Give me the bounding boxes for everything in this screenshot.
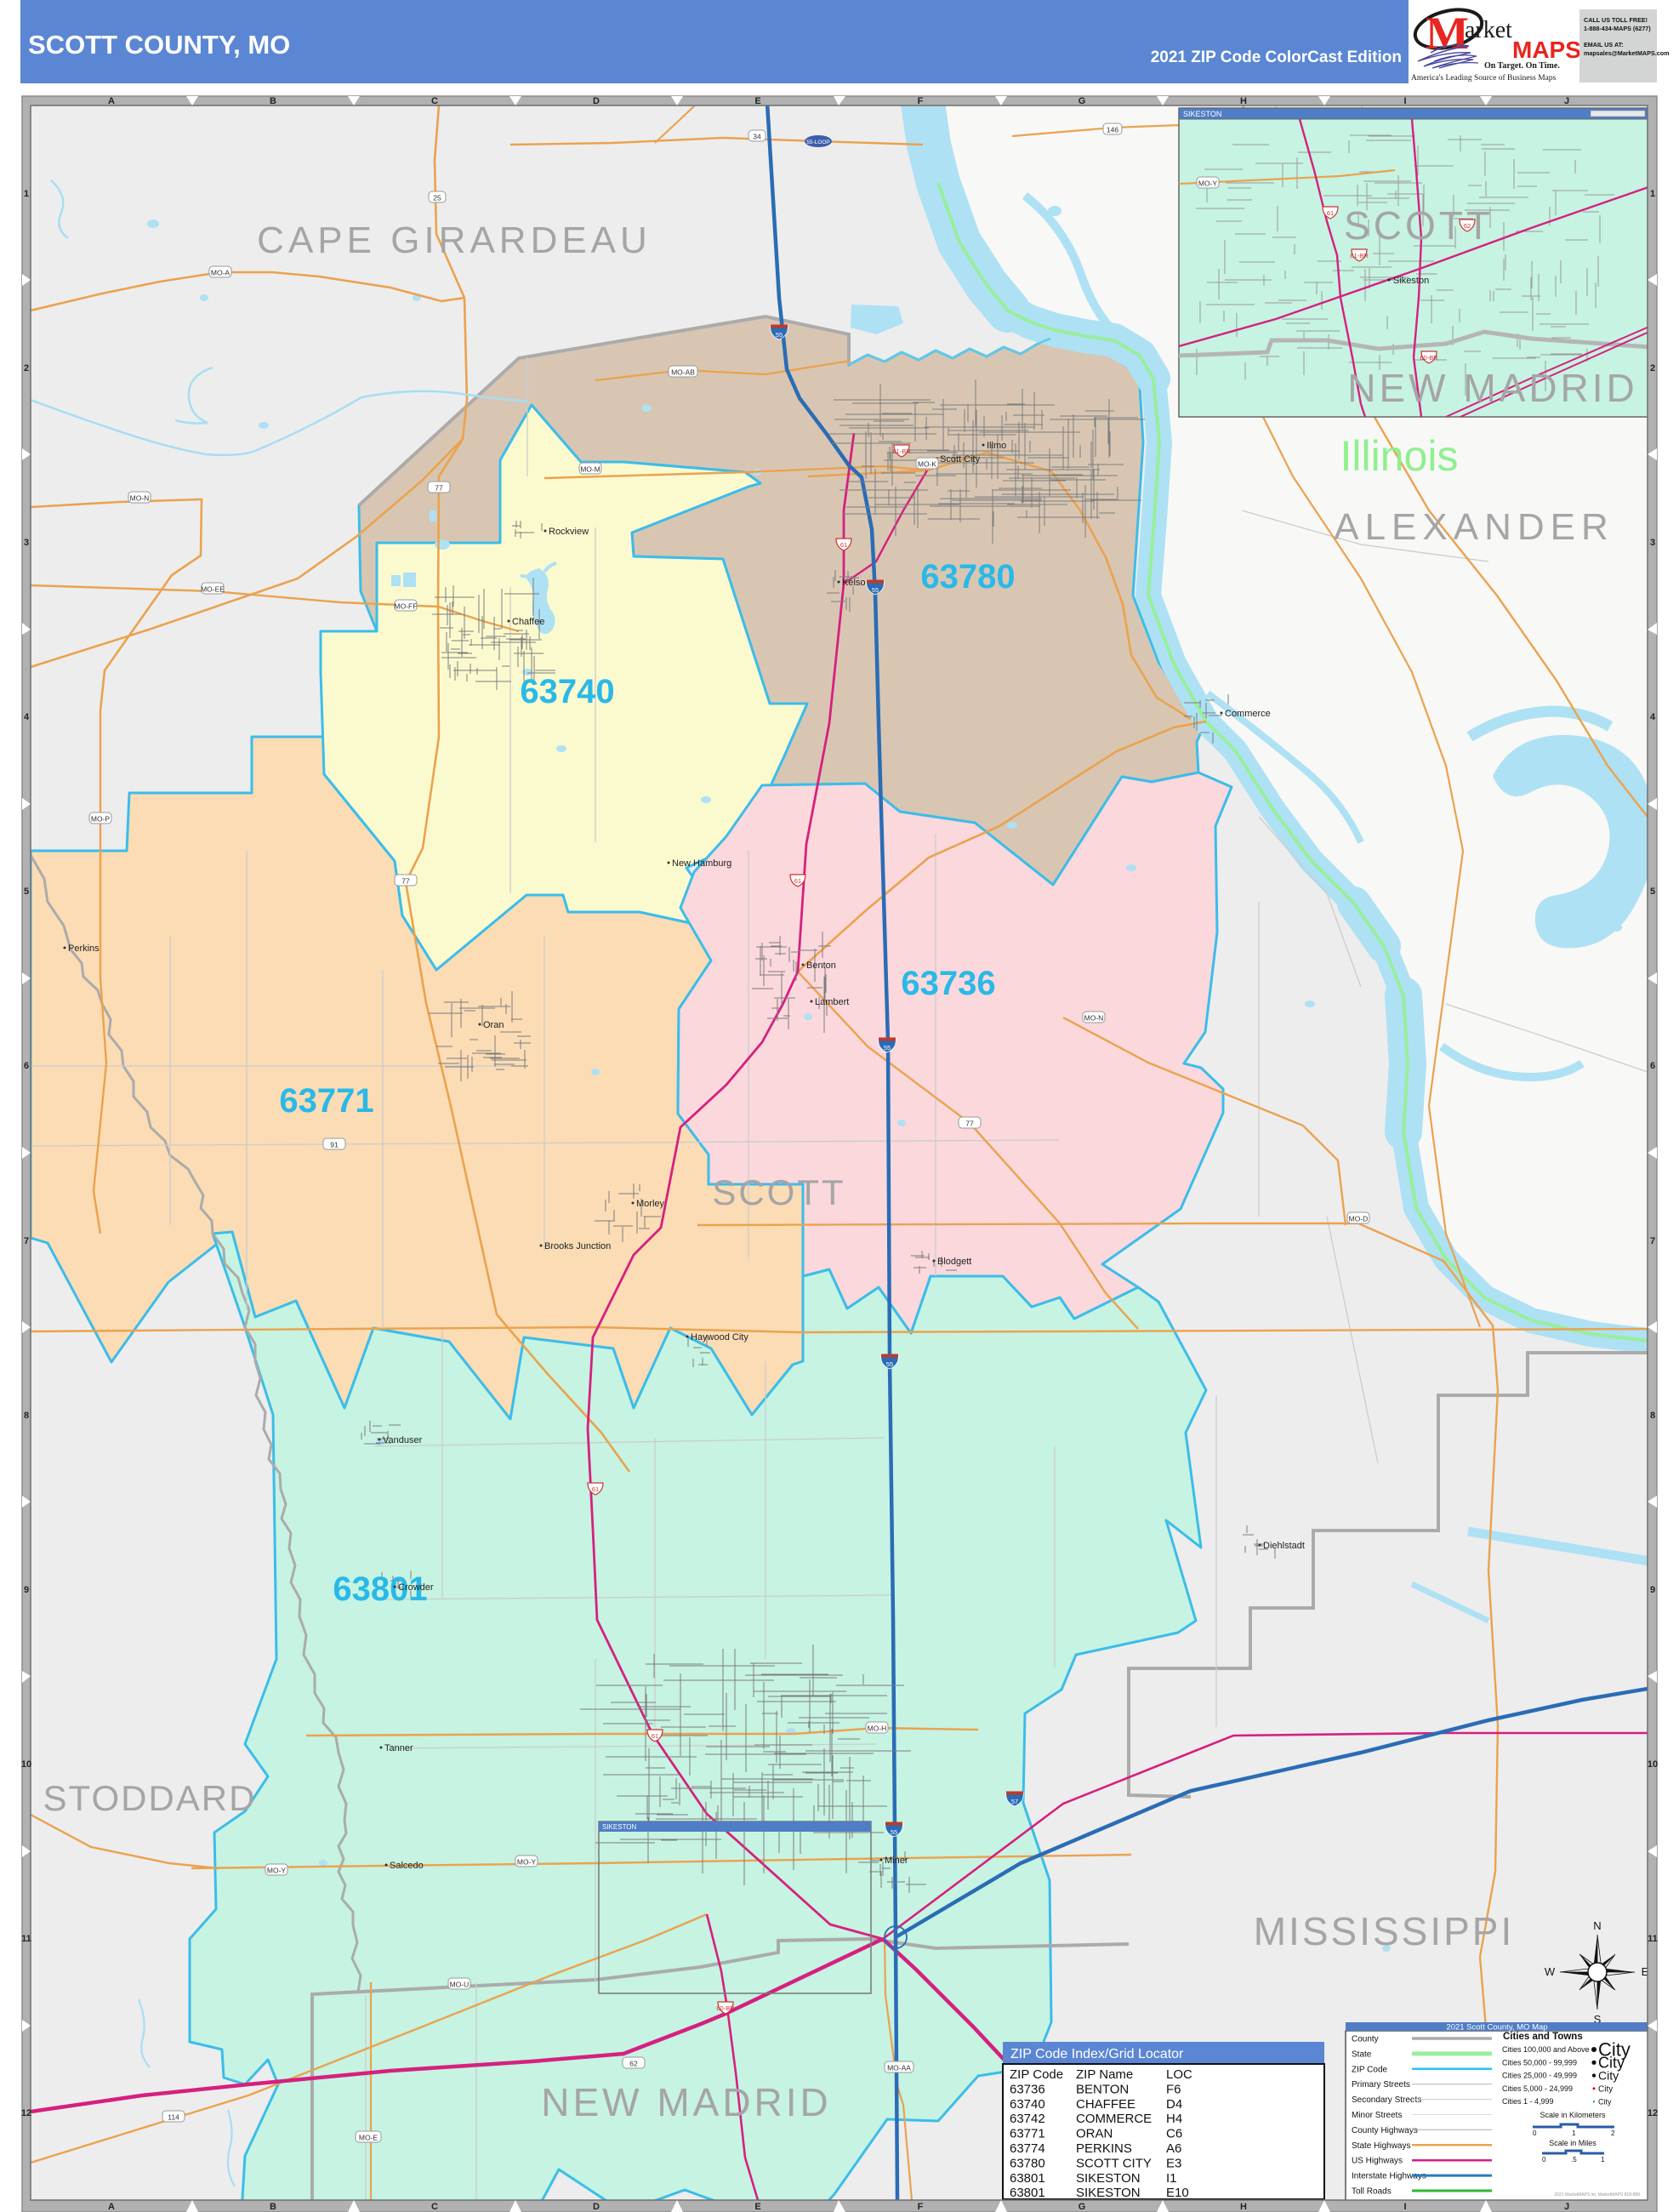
svg-text:61-BR: 61-BR: [892, 448, 911, 455]
svg-text:mapsales@MarketMAPS.com: mapsales@MarketMAPS.com: [1584, 49, 1670, 57]
svg-text:ZIP Code Index/Grid Locator: ZIP Code Index/Grid Locator: [1010, 2047, 1184, 2061]
svg-text:61: 61: [840, 541, 847, 549]
svg-text:2: 2: [1611, 2129, 1615, 2137]
svg-text:BENTON: BENTON: [1076, 2082, 1129, 2096]
svg-text:SCOTT COUNTY, MO: SCOTT COUNTY, MO: [28, 30, 290, 60]
svg-text:arket: arket: [1465, 17, 1512, 43]
svg-text:3: 3: [24, 538, 29, 548]
svg-text:H: H: [1240, 96, 1247, 106]
svg-text:MO-U: MO-U: [450, 1981, 470, 1989]
svg-text:4: 4: [1650, 712, 1656, 722]
svg-text:25: 25: [433, 194, 441, 202]
svg-text:2021 ZIP Code ColorCast Editio: 2021 ZIP Code ColorCast Edition: [1151, 48, 1402, 66]
svg-text:9: 9: [24, 1585, 29, 1595]
svg-text:63780: 63780: [1010, 2156, 1045, 2170]
svg-text:D: D: [593, 2202, 600, 2212]
svg-text:55: 55: [891, 1828, 897, 1836]
svg-text:55-LOOP: 55-LOOP: [806, 140, 829, 145]
svg-text:SIKESTON: SIKESTON: [1183, 110, 1221, 118]
svg-text:77: 77: [401, 877, 410, 886]
svg-text:61-BR: 61-BR: [1350, 252, 1369, 259]
svg-text:State: State: [1352, 2050, 1372, 2059]
svg-text:MO-AA: MO-AA: [887, 2064, 911, 2072]
svg-text:114: 114: [168, 2113, 179, 2122]
svg-text:County: County: [1352, 2035, 1379, 2044]
svg-text:Sikeston: Sikeston: [1393, 276, 1429, 286]
svg-text:61: 61: [592, 1485, 599, 1493]
svg-text:2: 2: [24, 363, 29, 373]
svg-text:91: 91: [330, 1141, 339, 1149]
svg-text:63774: 63774: [1010, 2141, 1045, 2156]
svg-text:MO-N: MO-N: [130, 494, 150, 503]
svg-text:77: 77: [965, 1120, 974, 1128]
svg-text:LOC: LOC: [1166, 2067, 1192, 2082]
svg-text:J: J: [1564, 2202, 1569, 2212]
svg-text:F: F: [918, 2202, 924, 2212]
svg-text:NEW MADRID: NEW MADRID: [541, 2080, 832, 2124]
svg-text:New Hamburg: New Hamburg: [672, 858, 731, 869]
svg-text:ZIP Code: ZIP Code: [1352, 2065, 1387, 2074]
svg-text:B: B: [270, 2202, 276, 2212]
svg-text:63736: 63736: [901, 965, 995, 1002]
svg-text:Tanner: Tanner: [384, 1743, 413, 1753]
svg-text:10: 10: [21, 1759, 31, 1770]
svg-text:CHAFFEE: CHAFFEE: [1076, 2097, 1135, 2112]
svg-text:CAPE GIRARDEAU: CAPE GIRARDEAU: [257, 219, 652, 261]
svg-text:61: 61: [652, 1732, 658, 1740]
svg-text:6: 6: [1650, 1061, 1655, 1071]
svg-text:Diehlstadt: Diehlstadt: [1263, 1541, 1305, 1551]
svg-text:Cities 5,000 - 24,999: Cities 5,000 - 24,999: [1502, 2084, 1573, 2093]
svg-text:SCOTT: SCOTT: [712, 1172, 845, 1212]
svg-text:G: G: [1079, 2202, 1086, 2212]
svg-text:4: 4: [24, 712, 30, 722]
svg-text:63801: 63801: [1010, 2186, 1045, 2200]
svg-text:MO-P: MO-P: [91, 815, 111, 824]
svg-text:77: 77: [435, 484, 443, 493]
svg-text:NEW MADRID: NEW MADRID: [1347, 366, 1638, 410]
svg-text:63771: 63771: [1010, 2127, 1045, 2141]
svg-text:Scale in Miles: Scale in Miles: [1549, 2139, 1596, 2147]
svg-text:63736: 63736: [1010, 2082, 1045, 2096]
svg-text:2021 Scott County, MO Map: 2021 Scott County, MO Map: [1446, 2023, 1547, 2032]
svg-text:Cities 25,000 - 49,999: Cities 25,000 - 49,999: [1502, 2072, 1577, 2080]
svg-text:Primary Streets: Primary Streets: [1352, 2080, 1410, 2089]
svg-text:C: C: [431, 2202, 438, 2212]
svg-text:7: 7: [24, 1236, 29, 1246]
svg-text:H: H: [1240, 2202, 1247, 2212]
svg-text:MO-M: MO-M: [580, 465, 600, 474]
svg-text:STODDARD: STODDARD: [43, 1778, 257, 1818]
svg-text:CALL US TOLL FREE!: CALL US TOLL FREE!: [1584, 16, 1648, 24]
svg-text:COMMERCE: COMMERCE: [1076, 2112, 1152, 2126]
svg-text:State Highways: State Highways: [1352, 2141, 1410, 2151]
svg-text:Illmo: Illmo: [987, 441, 1006, 451]
svg-text:1: 1: [1650, 189, 1655, 199]
svg-text:PERKINS: PERKINS: [1076, 2141, 1132, 2156]
svg-text:Benton: Benton: [806, 961, 836, 971]
svg-text:Blodgett: Blodgett: [937, 1257, 971, 1267]
svg-text:1-888-434-MAPS (6277): 1-888-434-MAPS (6277): [1584, 25, 1651, 32]
svg-text:10: 10: [1648, 1759, 1658, 1770]
svg-text:2021 MarketMAPS im. MarketMAPS: 2021 MarketMAPS im. MarketMAPS 818-888: [1554, 2192, 1640, 2198]
svg-text:ORAN: ORAN: [1076, 2127, 1113, 2141]
svg-text:Vanduser: Vanduser: [383, 1435, 423, 1445]
svg-text:60-BR: 60-BR: [716, 2004, 735, 2012]
svg-text:Kelso: Kelso: [842, 578, 866, 588]
svg-text:63740: 63740: [1010, 2097, 1045, 2112]
svg-text:I1: I1: [1166, 2171, 1177, 2186]
svg-text:Haywood City: Haywood City: [691, 1332, 748, 1343]
svg-text:US Highways: US Highways: [1352, 2157, 1403, 2166]
svg-text:City: City: [1598, 2097, 1612, 2106]
svg-text:D: D: [593, 96, 600, 106]
svg-text:MO-Y: MO-Y: [267, 1867, 287, 1875]
svg-text:EMAIL US AT:: EMAIL US AT:: [1584, 41, 1624, 48]
svg-text:Brooks Junction: Brooks Junction: [544, 1241, 611, 1251]
svg-text:57: 57: [1011, 1798, 1018, 1805]
svg-text:E: E: [754, 2202, 760, 2212]
svg-text:Morley: Morley: [636, 1199, 665, 1209]
svg-text:63740: 63740: [520, 673, 614, 710]
svg-text:MO-AB: MO-AB: [671, 368, 695, 377]
svg-text:Minor Streets: Minor Streets: [1352, 2111, 1402, 2120]
svg-text:City: City: [1598, 2069, 1619, 2083]
svg-text:Cities 1 - 4,999: Cities 1 - 4,999: [1502, 2097, 1554, 2106]
svg-text:12: 12: [21, 2108, 31, 2118]
svg-text:11: 11: [1648, 1934, 1658, 1944]
svg-text:Secondary Streets: Secondary Streets: [1352, 2095, 1421, 2105]
svg-text:B: B: [270, 96, 276, 106]
svg-text:SIKESTON: SIKESTON: [1076, 2186, 1141, 2200]
svg-text:8: 8: [24, 1411, 29, 1421]
svg-text:2: 2: [1650, 363, 1655, 373]
svg-text:ALEXANDER: ALEXANDER: [1334, 506, 1614, 548]
svg-text:61: 61: [1327, 209, 1334, 217]
svg-text:I: I: [1403, 96, 1406, 106]
svg-text:MO-K: MO-K: [918, 460, 937, 469]
svg-text:N: N: [1593, 1919, 1601, 1932]
svg-text:ZIP Code: ZIP Code: [1010, 2067, 1063, 2082]
svg-text:Salcedo: Salcedo: [390, 1861, 424, 1871]
svg-text:A: A: [108, 96, 115, 106]
svg-text:Lambert: Lambert: [815, 997, 849, 1007]
svg-text:MO-FF: MO-FF: [395, 602, 418, 611]
svg-text:146: 146: [1107, 126, 1118, 134]
svg-text:6: 6: [24, 1061, 29, 1071]
svg-text:55: 55: [884, 1044, 891, 1052]
svg-text:A6: A6: [1166, 2141, 1181, 2156]
svg-text:Cities 100,000 and Above: Cities 100,000 and Above: [1502, 2045, 1590, 2054]
svg-text:E: E: [754, 96, 760, 106]
svg-text:5: 5: [24, 887, 29, 897]
svg-text:E3: E3: [1166, 2156, 1181, 2170]
svg-text:Rockview: Rockview: [549, 527, 589, 537]
svg-text:I: I: [1403, 2202, 1406, 2212]
svg-text:8: 8: [1650, 1411, 1655, 1421]
svg-text:62: 62: [1464, 222, 1471, 230]
svg-text:Cities 50,000 - 99,999: Cities 50,000 - 99,999: [1502, 2058, 1577, 2067]
svg-text:.5: .5: [1571, 2156, 1577, 2164]
svg-text:J: J: [1564, 96, 1569, 106]
svg-text:63771: 63771: [279, 1082, 373, 1120]
svg-text:63801: 63801: [1010, 2171, 1045, 2186]
svg-text:MO-N: MO-N: [1084, 1014, 1104, 1023]
svg-text:MISSISSIPPI: MISSISSIPPI: [1254, 1909, 1515, 1953]
svg-text:MO-Y: MO-Y: [517, 1858, 537, 1867]
svg-text:63780: 63780: [920, 558, 1015, 596]
svg-text:0: 0: [1542, 2156, 1546, 2164]
svg-text:America's Leading Source of B: America's Leading Source of Business Map…: [1411, 73, 1557, 83]
svg-text:W: W: [1545, 1965, 1556, 1978]
svg-text:C6: C6: [1166, 2127, 1182, 2141]
svg-text:Toll Roads: Toll Roads: [1352, 2187, 1392, 2197]
svg-text:9: 9: [1650, 1585, 1655, 1595]
svg-text:62: 62: [629, 2060, 638, 2068]
svg-text:MO-A: MO-A: [211, 269, 231, 277]
svg-text:On Target. On Time.: On Target. On Time.: [1484, 61, 1560, 71]
svg-text:61: 61: [794, 877, 801, 885]
svg-text:34: 34: [753, 133, 761, 141]
svg-text:63742: 63742: [1010, 2112, 1045, 2126]
svg-text:F6: F6: [1166, 2082, 1181, 2096]
svg-text:E10: E10: [1166, 2186, 1189, 2200]
svg-text:MO-Y: MO-Y: [1198, 180, 1218, 188]
svg-text:Oran: Oran: [483, 1020, 504, 1030]
svg-text:Illinois: Illinois: [1340, 432, 1459, 480]
svg-text:55: 55: [872, 586, 879, 594]
svg-text:60-BR: 60-BR: [1420, 354, 1438, 362]
svg-text:A: A: [108, 2202, 115, 2212]
svg-text:D4: D4: [1166, 2097, 1182, 2112]
svg-text:MAPS: MAPS: [1512, 37, 1581, 63]
svg-text:Cities and Towns: Cities and Towns: [1503, 2032, 1583, 2042]
svg-text:F: F: [918, 96, 924, 106]
svg-text:Chaffee: Chaffee: [512, 617, 544, 627]
svg-text:5: 5: [1650, 887, 1655, 897]
svg-text:MO-E: MO-E: [359, 2134, 378, 2142]
svg-text:MO-EE: MO-EE: [201, 585, 225, 594]
svg-text:M: M: [1426, 8, 1469, 59]
svg-text:SIKESTON: SIKESTON: [1076, 2171, 1141, 2186]
svg-text:1: 1: [1601, 2156, 1605, 2164]
svg-text:Scott City: Scott City: [940, 454, 981, 465]
svg-text:0: 0: [1533, 2129, 1537, 2137]
svg-text:55: 55: [776, 331, 783, 339]
svg-text:C: C: [431, 96, 438, 106]
svg-text:1: 1: [1572, 2129, 1576, 2137]
svg-text:G: G: [1079, 96, 1086, 106]
svg-text:11: 11: [21, 1934, 31, 1944]
svg-text:1: 1: [24, 189, 29, 199]
svg-text:12: 12: [1648, 2108, 1658, 2118]
svg-text:SIKESTON: SIKESTON: [602, 1823, 637, 1831]
svg-text:MO-D: MO-D: [1349, 1215, 1369, 1223]
svg-text:7: 7: [1650, 1236, 1655, 1246]
svg-text:Crowder: Crowder: [398, 1582, 434, 1593]
svg-text:MO-H: MO-H: [868, 1725, 887, 1733]
svg-text:Perkins: Perkins: [68, 944, 100, 954]
svg-text:City: City: [1598, 2084, 1613, 2094]
svg-text:SCOTT CITY: SCOTT CITY: [1076, 2156, 1152, 2170]
svg-text:Miner: Miner: [885, 1856, 908, 1866]
svg-text:55: 55: [886, 1360, 893, 1368]
svg-text:3: 3: [1650, 538, 1655, 548]
svg-text:Scale in Kilometers: Scale in Kilometers: [1540, 2111, 1606, 2119]
svg-text:H4: H4: [1166, 2112, 1182, 2126]
svg-text:County Highways: County Highways: [1352, 2126, 1418, 2135]
svg-text:Commerce: Commerce: [1225, 709, 1271, 719]
svg-text:ZIP Name: ZIP Name: [1076, 2067, 1133, 2082]
